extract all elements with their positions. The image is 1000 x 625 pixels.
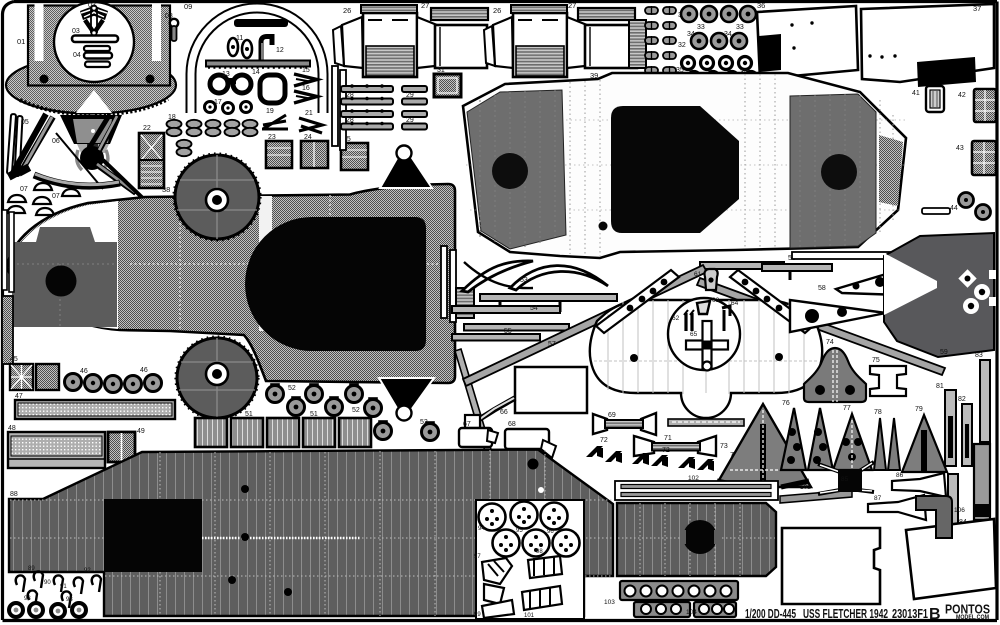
svg-text:66: 66 (500, 409, 508, 416)
svg-text:52: 52 (288, 385, 296, 392)
svg-text:55: 55 (504, 328, 512, 335)
svg-text:102: 102 (800, 484, 811, 491)
svg-text:76: 76 (782, 400, 790, 407)
svg-text:57: 57 (548, 341, 556, 348)
svg-text:97: 97 (474, 554, 481, 560)
svg-text:17: 17 (214, 99, 222, 106)
svg-text:39: 39 (590, 71, 598, 80)
svg-text:101: 101 (524, 613, 535, 619)
svg-text:62: 62 (672, 315, 680, 322)
svg-text:73: 73 (720, 443, 728, 450)
svg-text:81: 81 (936, 383, 944, 390)
svg-text:43: 43 (956, 145, 964, 152)
svg-text:09: 09 (184, 2, 192, 11)
svg-text:41: 41 (912, 90, 920, 97)
svg-text:96: 96 (547, 529, 554, 535)
svg-text:47: 47 (15, 393, 23, 400)
svg-text:44: 44 (950, 205, 958, 212)
svg-text:02: 02 (88, 2, 96, 9)
svg-text:48: 48 (8, 425, 16, 432)
svg-text:26: 26 (493, 6, 501, 15)
svg-text:104: 104 (686, 609, 697, 616)
svg-text:34: 34 (687, 31, 695, 38)
svg-text:07: 07 (20, 186, 28, 193)
svg-text:27: 27 (568, 1, 576, 10)
svg-text:14: 14 (252, 69, 260, 76)
svg-text:31: 31 (437, 67, 445, 74)
svg-text:23013F1: 23013F1 (892, 607, 928, 621)
svg-text:18: 18 (168, 114, 176, 121)
svg-text:B: B (929, 606, 941, 623)
svg-text:12: 12 (276, 47, 284, 54)
svg-text:23: 23 (268, 134, 276, 141)
svg-text:79: 79 (915, 406, 923, 413)
svg-text:78: 78 (874, 409, 882, 416)
svg-text:61: 61 (694, 271, 702, 278)
svg-text:95: 95 (516, 528, 523, 534)
svg-text:103: 103 (604, 599, 615, 606)
svg-text:49: 49 (137, 428, 145, 435)
svg-text:07: 07 (52, 193, 60, 200)
svg-text:89: 89 (28, 566, 35, 572)
svg-text:11: 11 (236, 35, 243, 42)
svg-text:82: 82 (958, 396, 966, 403)
svg-text:53: 53 (520, 277, 528, 284)
svg-text:106: 106 (954, 507, 965, 514)
svg-text:27: 27 (421, 1, 429, 10)
svg-text:15: 15 (302, 67, 310, 74)
svg-text:08: 08 (165, 13, 173, 20)
svg-text:71: 71 (664, 435, 672, 442)
svg-text:69: 69 (608, 412, 616, 419)
svg-text:03: 03 (72, 28, 80, 35)
svg-text:94: 94 (478, 526, 485, 532)
svg-text:51: 51 (245, 411, 253, 418)
svg-text:MODEL.COM: MODEL.COM (956, 615, 989, 621)
svg-text:75: 75 (872, 357, 880, 364)
svg-text:28: 28 (346, 92, 354, 99)
svg-text:04: 04 (73, 52, 81, 59)
svg-text:33: 33 (697, 24, 705, 31)
svg-text:37: 37 (973, 4, 981, 13)
svg-text:63: 63 (712, 297, 720, 304)
svg-text:87: 87 (874, 495, 882, 502)
svg-text:85: 85 (841, 476, 849, 483)
svg-text:46: 46 (80, 368, 88, 375)
svg-text:65: 65 (690, 331, 698, 338)
svg-text:06: 06 (52, 138, 60, 145)
svg-text:52: 52 (352, 407, 360, 414)
svg-text:19: 19 (266, 108, 274, 115)
svg-text:74: 74 (826, 339, 834, 346)
svg-text:05: 05 (21, 119, 29, 126)
svg-text:32: 32 (678, 42, 686, 49)
svg-text:77: 77 (843, 405, 851, 412)
svg-text:46: 46 (140, 367, 148, 374)
svg-text:13: 13 (222, 71, 230, 78)
svg-text:52: 52 (420, 419, 428, 426)
svg-text:54: 54 (530, 305, 538, 312)
svg-text:64: 64 (731, 300, 739, 307)
svg-text:29: 29 (406, 117, 414, 124)
svg-text:21: 21 (305, 110, 313, 117)
svg-text:33: 33 (736, 24, 744, 31)
svg-text:38: 38 (162, 185, 170, 194)
svg-text:72: 72 (600, 437, 608, 444)
svg-text:102: 102 (688, 475, 699, 482)
svg-text:24: 24 (304, 134, 312, 141)
svg-text:22: 22 (143, 125, 151, 132)
svg-text:86: 86 (896, 472, 904, 479)
svg-text:72: 72 (662, 447, 670, 454)
svg-text:USS FLETCHER 1942: USS FLETCHER 1942 (803, 607, 888, 621)
svg-text:90: 90 (44, 580, 51, 586)
svg-text:93: 93 (24, 596, 31, 602)
svg-text:91: 91 (60, 584, 67, 590)
svg-text:99: 99 (474, 612, 481, 618)
svg-text:28: 28 (346, 117, 354, 124)
svg-text:1/200 DD-445: 1/200 DD-445 (745, 607, 796, 621)
svg-text:45: 45 (10, 356, 18, 363)
svg-text:83: 83 (975, 352, 983, 359)
svg-text:98: 98 (536, 549, 543, 555)
svg-text:42: 42 (958, 92, 966, 99)
svg-text:34: 34 (724, 31, 732, 38)
svg-text:29: 29 (406, 92, 414, 99)
svg-text:88: 88 (10, 491, 18, 498)
svg-text:93: 93 (66, 597, 73, 603)
svg-text:92: 92 (84, 568, 91, 574)
svg-text:58: 58 (818, 285, 826, 292)
svg-text:16: 16 (302, 85, 310, 92)
svg-text:01: 01 (17, 37, 25, 46)
svg-text:67: 67 (463, 421, 471, 428)
svg-text:26: 26 (343, 6, 351, 15)
svg-text:36: 36 (757, 1, 765, 10)
svg-text:51: 51 (310, 411, 318, 418)
svg-text:59: 59 (940, 349, 948, 356)
svg-text:68: 68 (508, 421, 516, 428)
